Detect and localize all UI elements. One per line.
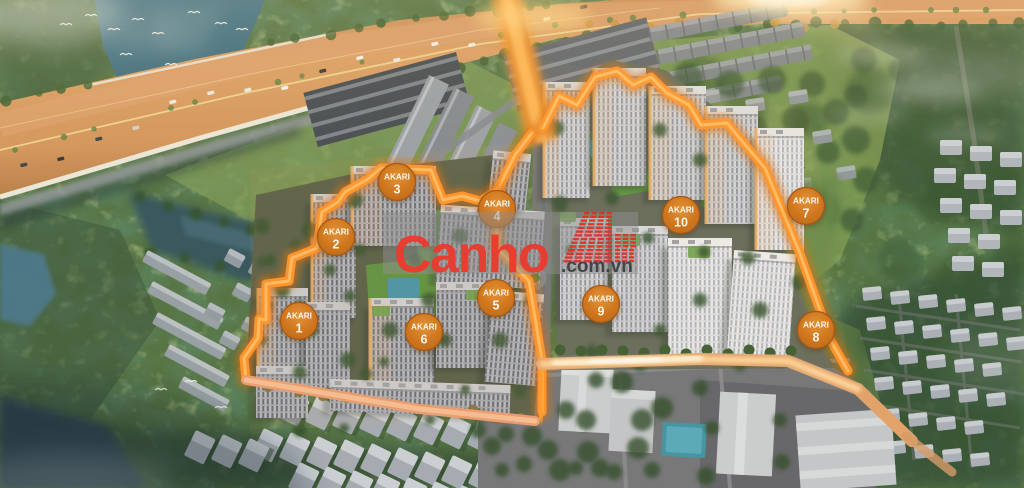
svg-text:AKARI: AKARI [411,323,437,332]
svg-text:3: 3 [394,183,401,197]
svg-text:AKARI: AKARI [484,200,510,209]
svg-text:9: 9 [598,305,605,319]
svg-text:AKARI: AKARI [803,321,829,330]
svg-text:AKARI: AKARI [384,173,410,182]
svg-text:AKARI: AKARI [286,312,312,321]
svg-text:AKARI: AKARI [483,289,509,298]
svg-text:8: 8 [813,331,820,345]
svg-text:AKARI: AKARI [793,197,819,206]
svg-text:7: 7 [803,207,810,221]
svg-text:AKARI: AKARI [668,206,694,215]
svg-text:6: 6 [421,333,428,347]
svg-text:Canho: Canho [394,226,548,284]
svg-text:2: 2 [333,238,340,252]
svg-text:AKARI: AKARI [323,228,349,237]
svg-text:AKARI: AKARI [588,295,614,304]
svg-text:5: 5 [493,299,500,313]
svg-text:1: 1 [296,322,303,336]
svg-text:10: 10 [674,216,688,230]
svg-text:.com.vn: .com.vn [561,256,633,277]
